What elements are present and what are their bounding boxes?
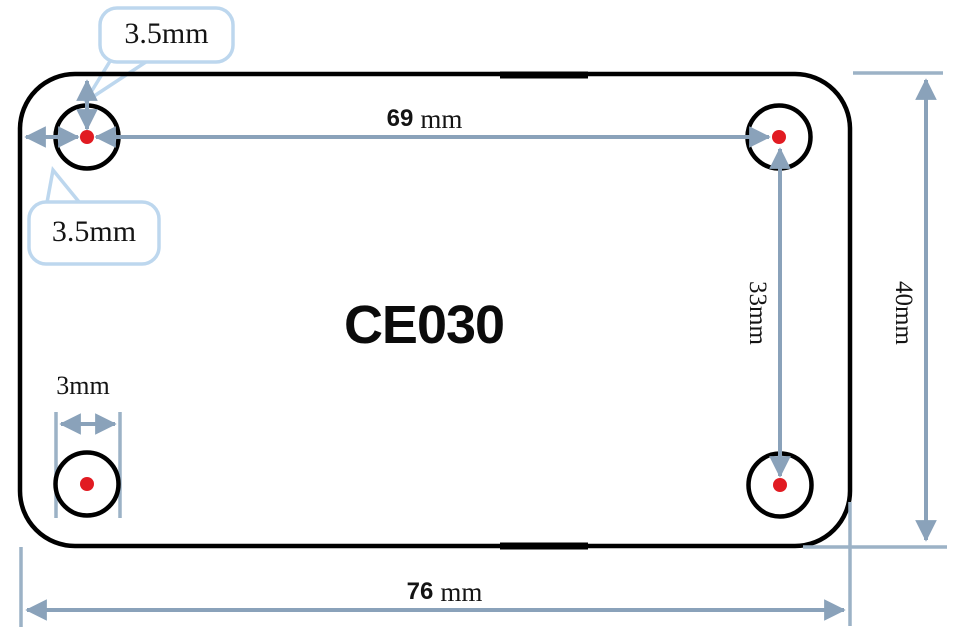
callout-label-left-hole-offset: 3.5mm xyxy=(32,201,156,263)
dimension-value: 76 xyxy=(407,578,434,606)
hole-center-dot xyxy=(80,477,94,491)
part-label: CE030 xyxy=(324,296,524,354)
dimension-label-hole-pitch-horizontal: 69mm xyxy=(352,103,497,135)
dimension-value: 69 xyxy=(387,105,414,133)
hole-center-dot xyxy=(773,478,787,492)
hole-center-dot xyxy=(80,130,94,144)
dimension-unit: mm xyxy=(420,104,462,135)
callout-tail-icon xyxy=(85,58,152,102)
dimension-label-hole-diameter: 3mm xyxy=(43,371,123,401)
dimension-unit: mm xyxy=(440,577,482,608)
callout-label-top-hole-offset: 3.5mm xyxy=(100,8,233,60)
hole-center-dot xyxy=(772,130,786,144)
dimension-label-board-width: 76mm xyxy=(372,576,517,608)
dimension-label-board-height: 40mm xyxy=(889,272,917,354)
dimension-diagram: 3.5mm 3.5mm 69mm 76mm 33mm 40mm 3mm CE03… xyxy=(0,0,961,627)
dimension-label-hole-pitch-vertical: 33mm xyxy=(743,272,771,354)
